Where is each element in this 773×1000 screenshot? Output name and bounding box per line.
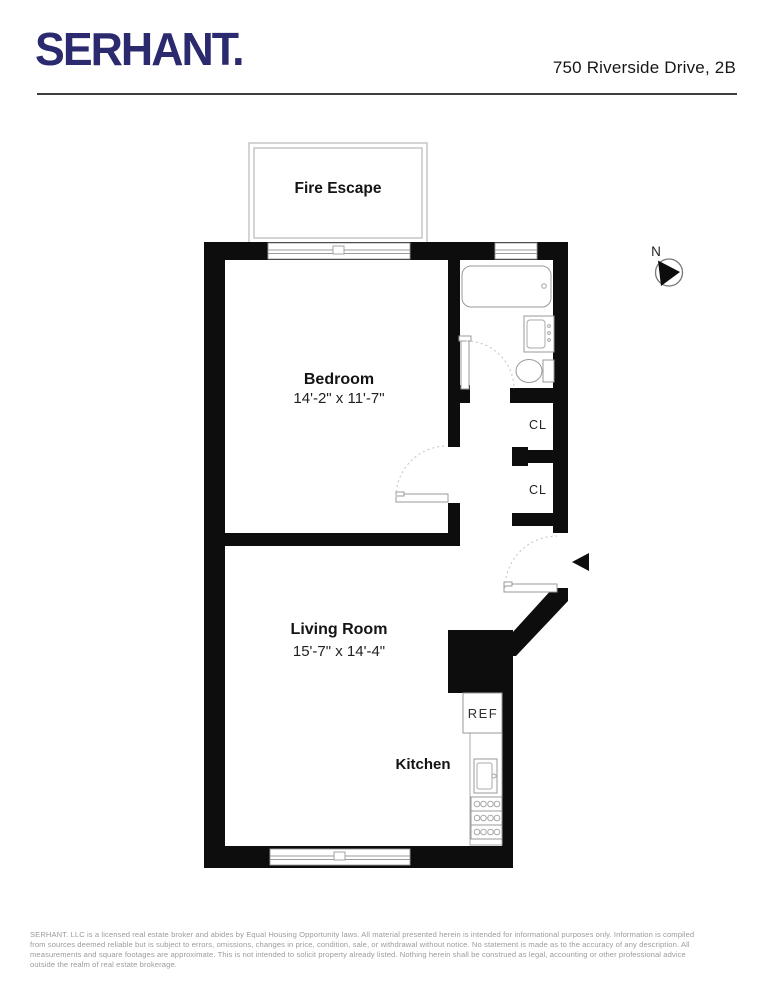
living-room-label: Living Room [291,621,388,638]
walls [204,242,568,868]
toilet-icon [516,360,554,383]
disclaimer-line: SERHANT. LLC is a licensed real estate b… [30,930,748,940]
bedroom-dimensions: 14'-2" x 11'-7" [293,390,384,407]
legal-disclaimer: SERHANT. LLC is a licensed real estate b… [30,930,748,970]
bathroom-window [495,243,537,259]
closet-upper-label: CL [529,418,547,432]
bedroom-door [396,446,448,502]
disclaimer-line: measurements and square footages are app… [30,950,748,960]
bathroom-sink-icon [524,316,554,352]
north-arrow-icon: N [651,244,682,286]
living-room-dimensions: 15'-7" x 14'-4" [293,643,385,660]
bedroom-window [268,243,410,259]
disclaimer-line: from sources deemed reliable but is subj… [30,940,748,950]
entry-arrow-icon [572,553,589,571]
floorplan-page: SERHANT. 750 Riverside Drive, 2B [0,0,773,1000]
floorplan-drawing: CL CL REF [0,0,773,1000]
closet-lower-label: CL [529,483,547,497]
living-room-window [270,849,410,865]
kitchen-sink-icon [474,759,497,793]
fire-escape-label: Fire Escape [294,180,381,197]
bedroom-label: Bedroom [304,371,374,388]
stove-icon [471,797,502,839]
entry-door [504,536,557,592]
north-label: N [651,244,661,259]
bathroom-door [459,336,514,389]
refrigerator-label: REF [468,706,499,721]
refrigerator: REF [463,693,502,733]
disclaimer-line: outside the realm of real estate brokera… [30,960,748,970]
bathtub-icon [462,266,551,307]
kitchen-label: Kitchen [395,756,450,773]
